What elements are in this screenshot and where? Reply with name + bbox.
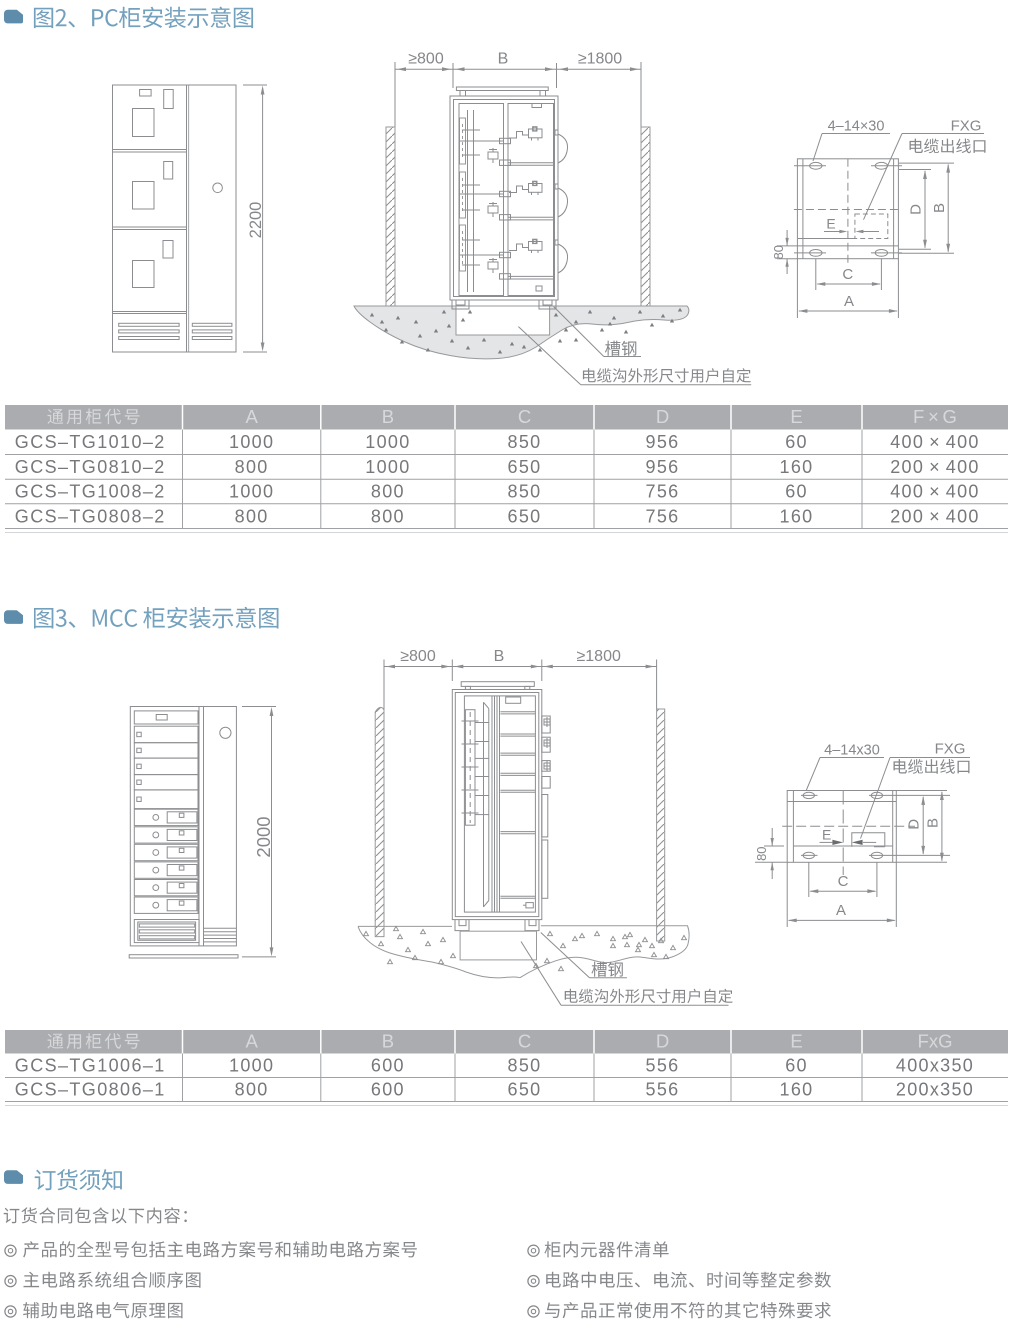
svg-text:E: E: [790, 1031, 802, 1052]
svg-text:B: B: [382, 1031, 394, 1052]
svg-text:800: 800: [235, 1080, 269, 1100]
svg-text:B: B: [498, 51, 509, 68]
svg-text:C: C: [518, 406, 531, 427]
svg-text:D: D: [656, 406, 669, 427]
svg-text:FxG: FxG: [918, 1031, 953, 1052]
svg-text:650: 650: [508, 506, 542, 526]
svg-text:600: 600: [371, 1056, 405, 1076]
svg-text:400 × 400: 400 × 400: [890, 432, 979, 452]
svg-text:F × G: F × G: [913, 406, 957, 427]
svg-text:D: D: [906, 819, 923, 830]
svg-text:556: 556: [646, 1056, 680, 1076]
svg-text:GCS–TG0808–2: GCS–TG0808–2: [15, 506, 166, 526]
svg-text:GCS–TG1010–2: GCS–TG1010–2: [15, 432, 166, 452]
svg-text:756: 756: [646, 506, 680, 526]
svg-text:B: B: [931, 203, 948, 213]
svg-text:80: 80: [754, 846, 769, 860]
svg-text:GCS–TG0810–2: GCS–TG0810–2: [15, 457, 166, 477]
svg-text:956: 956: [646, 432, 680, 452]
svg-text:1000: 1000: [229, 432, 274, 452]
svg-text:4–14x30: 4–14x30: [824, 743, 880, 759]
svg-text:FXG: FXG: [935, 741, 966, 758]
svg-text:≥1800: ≥1800: [578, 51, 622, 68]
svg-text:≥800: ≥800: [408, 51, 444, 68]
svg-text:A: A: [245, 406, 258, 427]
svg-text:GCS–TG1006–1: GCS–TG1006–1: [15, 1056, 166, 1076]
svg-text:200 × 400: 200 × 400: [890, 457, 979, 477]
svg-text:556: 556: [646, 1080, 680, 1100]
svg-text:A: A: [245, 1031, 258, 1052]
svg-text:80: 80: [771, 245, 786, 259]
svg-text:1000: 1000: [365, 432, 410, 452]
svg-text:1000: 1000: [229, 482, 274, 502]
svg-text:C: C: [838, 873, 849, 890]
svg-text:400x350: 400x350: [896, 1056, 974, 1076]
svg-text:E: E: [790, 406, 802, 427]
svg-text:650: 650: [508, 1080, 542, 1100]
svg-text:60: 60: [785, 482, 808, 502]
svg-text:850: 850: [508, 1056, 542, 1076]
svg-text:D: D: [908, 204, 925, 215]
svg-text:800: 800: [371, 506, 405, 526]
svg-text:B: B: [924, 818, 941, 828]
svg-text:400 × 400: 400 × 400: [890, 482, 979, 502]
svg-text:E: E: [826, 216, 835, 232]
svg-text:GCS–TG1008–2: GCS–TG1008–2: [15, 482, 166, 502]
svg-text:FXG: FXG: [951, 118, 982, 135]
svg-text:C: C: [518, 1031, 531, 1052]
svg-text:E: E: [822, 827, 831, 843]
svg-text:A: A: [836, 902, 846, 919]
svg-text:2200: 2200: [247, 202, 265, 239]
svg-text:4–14×30: 4–14×30: [828, 119, 885, 135]
svg-text:≥1800: ≥1800: [577, 648, 621, 665]
svg-text:160: 160: [780, 457, 814, 477]
svg-text:D: D: [656, 1031, 669, 1052]
svg-text:2000: 2000: [253, 816, 274, 857]
svg-text:160: 160: [780, 506, 814, 526]
svg-text:60: 60: [785, 432, 808, 452]
svg-text:1000: 1000: [365, 457, 410, 477]
svg-text:850: 850: [508, 482, 542, 502]
svg-text:B: B: [494, 648, 505, 665]
svg-text:C: C: [842, 266, 853, 283]
svg-text:956: 956: [646, 457, 680, 477]
svg-text:200 × 400: 200 × 400: [890, 506, 979, 526]
svg-text:B: B: [382, 406, 394, 427]
svg-text:160: 160: [780, 1080, 814, 1100]
svg-text:800: 800: [235, 506, 269, 526]
svg-text:600: 600: [371, 1080, 405, 1100]
svg-text:GCS–TG0806–1: GCS–TG0806–1: [15, 1080, 166, 1100]
svg-text:1000: 1000: [229, 1056, 274, 1076]
svg-text:≥800: ≥800: [400, 648, 436, 665]
svg-text:800: 800: [235, 457, 269, 477]
svg-text:800: 800: [371, 482, 405, 502]
svg-text:650: 650: [508, 457, 542, 477]
svg-text:200x350: 200x350: [896, 1080, 974, 1100]
svg-text:850: 850: [508, 432, 542, 452]
svg-text:756: 756: [646, 482, 680, 502]
svg-text:A: A: [844, 293, 854, 310]
svg-text:60: 60: [785, 1056, 808, 1076]
